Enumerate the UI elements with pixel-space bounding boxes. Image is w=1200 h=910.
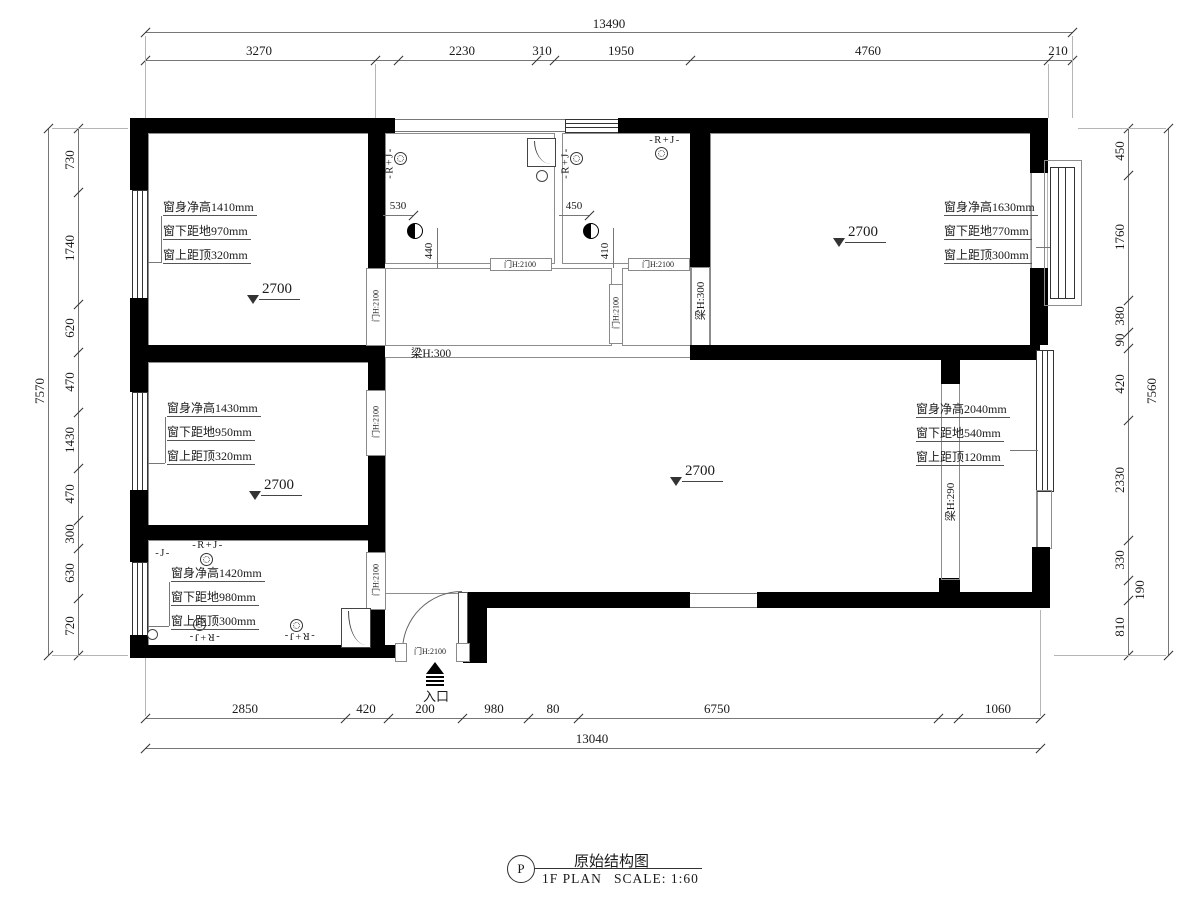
window-top [565, 119, 620, 133]
dim-right-seg: 450 [1112, 141, 1128, 161]
dim-left-seg: 470 [62, 484, 78, 504]
wall-interior-vertical [368, 362, 385, 390]
dim-right-seg: 90 [1112, 334, 1128, 347]
spec-line: 窗上距顶320mm [167, 449, 255, 465]
window-left-3 [132, 562, 148, 637]
door-height-label: 门H:2100 [371, 406, 382, 438]
leader-line [1036, 247, 1050, 248]
dim-line-right-overall [1168, 128, 1169, 655]
title-underline [534, 868, 702, 869]
door-height-label: 门H:2100 [371, 290, 382, 322]
leader-line [383, 215, 413, 216]
extension-line [1054, 655, 1166, 656]
dim-bottom-seg: 6750 [704, 701, 730, 717]
dim-right-seg: 2330 [1112, 467, 1128, 493]
switch-label: -R+J- [192, 540, 224, 551]
floor-plan: 13490 3270 2230 310 1950 4760 210 2850 4… [0, 0, 1200, 910]
entry-door-swing [402, 591, 462, 651]
beam-label: 梁H:300 [411, 345, 451, 361]
extension-line [145, 36, 146, 118]
level-value: 2700 [259, 281, 300, 300]
dim-line-bottom-overall [145, 748, 1041, 749]
bath1-dim-x: 530 [390, 200, 407, 212]
door-height-label: 门H:2100 [504, 259, 536, 270]
leader-line [169, 582, 170, 626]
level-value: 2700 [682, 463, 723, 482]
leader-line [437, 228, 438, 268]
window-spec-right: 窗身净高2040mm 窗下距地540mm 窗上距顶120mm [916, 402, 1010, 474]
dim-top-seg: 310 [532, 43, 552, 59]
spec-line: 窗下距地980mm [171, 590, 259, 606]
switch-label: -J- [155, 548, 171, 559]
entry-jamb [456, 643, 470, 662]
extension-line [52, 655, 128, 656]
leader-line [165, 417, 166, 463]
wall-living-bottom [757, 592, 1044, 608]
level-mark: 2700 [833, 224, 886, 243]
thin-wall-right [1036, 490, 1052, 549]
spec-line: 窗下距地540mm [916, 426, 1004, 442]
dim-top-seg: 4760 [855, 43, 881, 59]
circle-icon [536, 170, 548, 182]
dim-left-seg: 630 [62, 563, 78, 583]
shower-icon [341, 608, 371, 648]
dim-bottom-seg: 80 [547, 701, 560, 717]
dim-bottom-seg: 1060 [985, 701, 1011, 717]
dim-line-top-segments [145, 60, 1073, 61]
spec-line: 窗身净高1630mm [944, 200, 1038, 216]
switch-label: -R+J- [283, 630, 315, 641]
dim-bottom-seg: 980 [484, 701, 504, 717]
spec-line: 窗上距顶300mm [171, 614, 259, 630]
extension-line [1072, 36, 1073, 118]
door-height-label: 门H:2100 [414, 646, 446, 657]
leader-line [148, 262, 162, 263]
spec-line: 窗上距顶120mm [916, 450, 1004, 466]
dim-left-seg: 1430 [62, 427, 78, 453]
dim-right-seg: 380 [1112, 306, 1128, 326]
dim-bottom-overall: 13040 [576, 731, 609, 747]
level-mark: 2700 [670, 463, 723, 482]
level-mark: 2700 [247, 281, 300, 300]
dim-right-seg: 810 [1112, 617, 1128, 637]
leader-line [613, 228, 614, 268]
spec-line: 窗身净高1410mm [163, 200, 257, 216]
lamp-icon [407, 223, 423, 239]
dim-right-seg: 1760 [1112, 224, 1128, 250]
room-bathroom-2 [562, 133, 692, 264]
dim-left-seg: 720 [62, 616, 78, 636]
bay-window [1050, 167, 1075, 299]
window-left-1 [132, 190, 148, 300]
spec-line: 窗下距地970mm [163, 224, 251, 240]
dim-line-top-overall [145, 32, 1073, 33]
door-height-label: 门H:2100 [371, 564, 382, 596]
level-value: 2700 [261, 477, 302, 496]
wall-interior-vertical [368, 540, 385, 552]
dim-top-seg: 3270 [246, 43, 272, 59]
entrance-arrow-bar [426, 680, 444, 682]
entrance-arrow-bar [426, 676, 444, 678]
dim-line-right-segments [1128, 128, 1129, 655]
room-hallway [385, 268, 612, 346]
wall-bath2-right [690, 133, 710, 267]
dim-right-overall: 7560 [1144, 378, 1160, 404]
leader-line [161, 216, 162, 262]
wall-left [130, 118, 148, 190]
level-mark-icon [670, 477, 682, 492]
light-icon [655, 147, 668, 160]
plan-scale: SCALE: 1:60 [614, 871, 699, 887]
opening-living-bottom [690, 593, 757, 608]
beam-column-cap [941, 360, 960, 384]
wall-living-bottom [463, 592, 690, 608]
window-spec-top-left: 窗身净高1410mm 窗下距地970mm 窗上距顶320mm [163, 200, 257, 272]
dim-right-seg: 330 [1112, 550, 1128, 570]
level-mark-icon [249, 491, 261, 506]
spec-line: 窗上距顶300mm [944, 248, 1032, 264]
beam-label: 梁H:300 [692, 282, 708, 321]
spec-line: 窗下距地950mm [167, 425, 255, 441]
light-icon [570, 152, 583, 165]
shower-icon [527, 138, 556, 167]
spec-line: 窗上距顶320mm [163, 248, 251, 264]
extension-line [1040, 610, 1041, 716]
level-mark-icon [833, 238, 845, 253]
wall-pier [939, 578, 960, 592]
extension-line [1048, 64, 1049, 118]
level-value: 2700 [845, 224, 886, 243]
extension-line [145, 658, 146, 716]
dim-top-seg: 1950 [608, 43, 634, 59]
leader-line [148, 463, 165, 464]
wall-top-right [618, 118, 1048, 133]
wall-topright-bottom [690, 345, 1040, 360]
dim-top-overall: 13490 [593, 16, 626, 32]
dim-left-seg: 1740 [62, 235, 78, 261]
extension-line [52, 128, 128, 129]
bath1-dim-y: 440 [423, 243, 435, 260]
dim-right-seg: 190 [1132, 580, 1148, 600]
dim-left-seg: 300 [62, 524, 78, 544]
door-height-label: 门H:2100 [642, 259, 674, 270]
window-left-2 [132, 392, 148, 492]
wall-interior-horizontal [130, 345, 385, 362]
dim-left-overall: 7570 [32, 378, 48, 404]
window-spec-top-right: 窗身净高1630mm 窗下距地770mm 窗上距顶300mm [944, 200, 1038, 272]
dim-top-seg: 2230 [449, 43, 475, 59]
dim-line-left-overall [48, 128, 49, 655]
dim-bottom-seg: 420 [356, 701, 376, 717]
dim-top-seg: 210 [1048, 43, 1068, 59]
entrance-label: 入口 [423, 686, 449, 705]
window-spec-mid-left: 窗身净高1430mm 窗下距地950mm 窗上距顶320mm [167, 401, 261, 473]
switch-label: -R+J- [385, 147, 396, 179]
door-height-label: 门H:2100 [611, 297, 622, 329]
bath2-dim-x: 450 [566, 200, 583, 212]
leader-line [1010, 450, 1038, 451]
switch-label: -R+J- [561, 147, 572, 179]
wall-interior-horizontal [130, 525, 385, 540]
wall-interior-vertical [368, 455, 385, 525]
leader-line [148, 626, 169, 627]
dim-left-seg: 620 [62, 318, 78, 338]
wall-interior-vertical [368, 133, 385, 268]
plan-subtitle: 1F PLAN [542, 871, 602, 887]
level-mark-icon [247, 295, 259, 310]
spec-line: 窗身净高2040mm [916, 402, 1010, 418]
extension-line [375, 64, 376, 118]
beam-label: 梁H:290 [942, 483, 958, 522]
dim-bottom-seg: 2850 [232, 701, 258, 717]
spec-line: 窗下距地770mm [944, 224, 1032, 240]
dim-left-seg: 730 [62, 150, 78, 170]
lamp-icon [583, 223, 599, 239]
entry-jamb [395, 643, 407, 662]
spec-line: 窗身净高1430mm [167, 401, 261, 417]
entrance-arrow-icon [426, 662, 444, 674]
leader-line [559, 215, 589, 216]
dim-left-seg: 470 [62, 372, 78, 392]
switch-label: -R+J- [649, 135, 681, 146]
wall-top-left [130, 118, 395, 133]
dim-line-left-segments [78, 128, 79, 655]
extension-line [1078, 128, 1166, 129]
plan-bubble: P [507, 855, 535, 883]
dim-right-seg: 420 [1112, 374, 1128, 394]
light-icon [394, 152, 407, 165]
thin-wall-top [395, 119, 565, 132]
spec-line: 窗身净高1420mm [171, 566, 265, 582]
bath2-dim-y: 410 [599, 243, 611, 260]
level-mark: 2700 [249, 477, 302, 496]
window-living-right [1036, 350, 1054, 492]
dim-line-bottom-segments [145, 718, 1041, 719]
window-spec-bottom-left: 窗身净高1420mm 窗下距地980mm 窗上距顶300mm [171, 566, 265, 638]
circle-icon [147, 629, 158, 640]
room-closet [622, 268, 692, 346]
light-icon [200, 553, 213, 566]
